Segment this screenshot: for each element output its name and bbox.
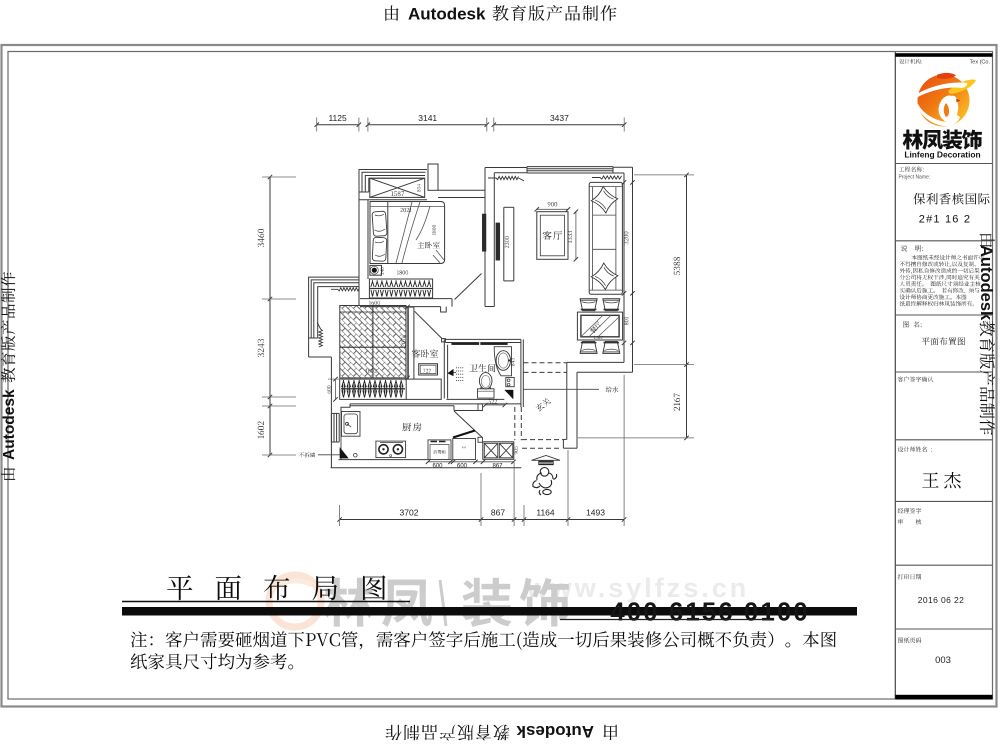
svg-text:3437: 3437 — [550, 113, 569, 123]
svg-text:Autodesk: Autodesk — [408, 5, 486, 24]
svg-text:600: 600 — [432, 464, 443, 470]
svg-text:1493: 1493 — [586, 508, 605, 518]
svg-text:Autodesk: Autodesk — [516, 722, 594, 741]
svg-text:3141: 3141 — [418, 113, 437, 123]
svg-text:Project Name:: Project Name: — [899, 175, 931, 181]
svg-text:1164: 1164 — [536, 508, 555, 518]
svg-text:400 6156 0100: 400 6156 0100 — [610, 597, 810, 627]
svg-text:2016 06 22: 2016 06 22 — [918, 595, 965, 605]
svg-text:1125: 1125 — [328, 113, 347, 123]
svg-text:Tex (Co.: Tex (Co. — [970, 60, 991, 66]
svg-text:Linfeng Decoration: Linfeng Decoration — [904, 150, 980, 160]
svg-text:3702: 3702 — [400, 508, 419, 518]
svg-text:600: 600 — [457, 464, 468, 470]
svg-text:Autodesk: Autodesk — [1, 389, 18, 460]
svg-text:003: 003 — [935, 655, 951, 666]
svg-text:867: 867 — [491, 508, 505, 518]
svg-text:2#1 16 2: 2#1 16 2 — [919, 214, 971, 226]
svg-text:867: 867 — [492, 464, 503, 470]
